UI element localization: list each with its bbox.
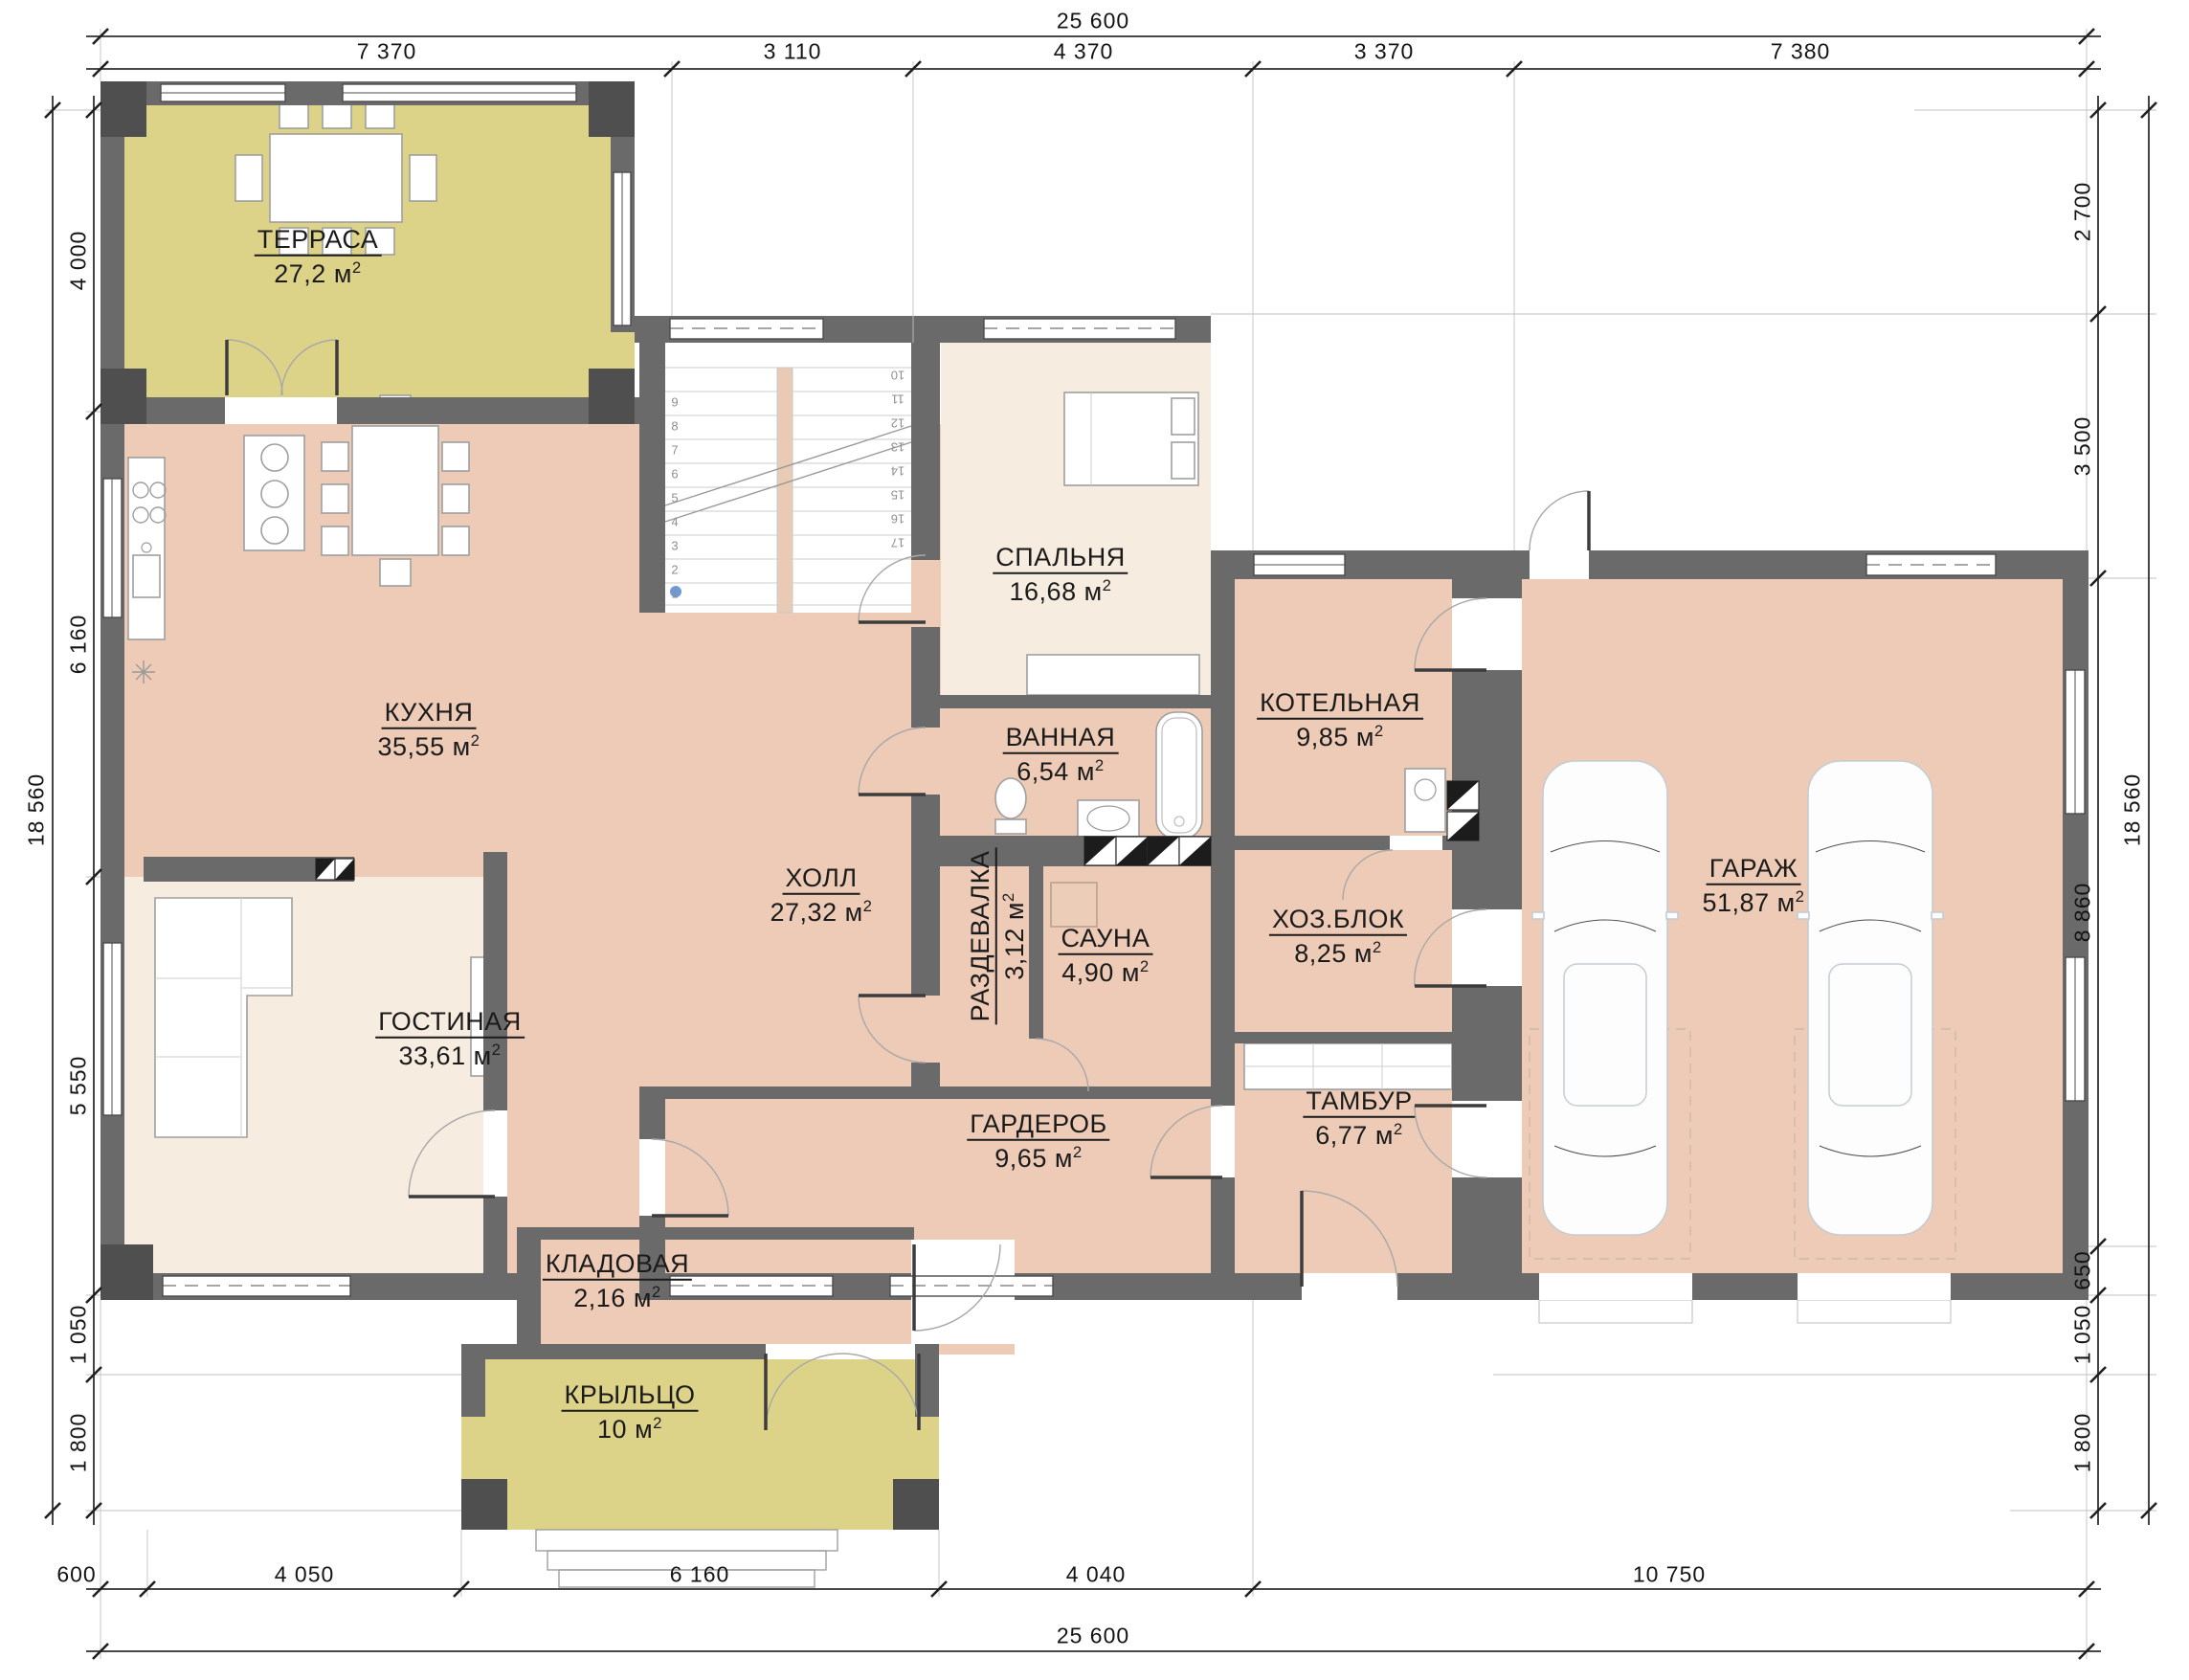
dim-left_segments-0: 4 000 bbox=[66, 231, 92, 291]
stair-step-number: 16 bbox=[891, 512, 905, 526]
stair-step-number: 6 bbox=[671, 467, 678, 482]
room-area: 9,85 м2 bbox=[1296, 723, 1383, 751]
stair-step-number: 9 bbox=[671, 395, 678, 410]
room-label-kladovaya: КЛАДОВАЯ2,16 м2 bbox=[543, 1249, 692, 1312]
room-area: 2,16 м2 bbox=[573, 1284, 660, 1312]
room-label-gostinaya: ГОСТИНАЯ33,61 м2 bbox=[375, 1007, 525, 1070]
stair-step-number: 11 bbox=[891, 392, 905, 407]
stair-step-number: 8 bbox=[671, 419, 678, 434]
room-name: ГАРАЖ bbox=[1707, 854, 1800, 885]
room-area: 51,87 м2 bbox=[1703, 888, 1805, 917]
stair-step-number: 5 bbox=[671, 491, 678, 505]
dim-left_segments-1: 6 160 bbox=[66, 615, 92, 675]
room-label-kotelnaya: КОТЕЛЬНАЯ9,85 м2 bbox=[1257, 688, 1423, 751]
stair-step-number: 14 bbox=[891, 464, 905, 479]
room-name: РАЗДЕВАЛКА bbox=[966, 848, 997, 1025]
room-name: КРЫЛЬЦО bbox=[562, 1380, 699, 1412]
dim-top_total: 25 600 bbox=[1057, 9, 1129, 34]
dim-left_segments-4: 1 800 bbox=[66, 1413, 92, 1473]
dim-right_total: 18 560 bbox=[2120, 773, 2146, 846]
room-area: 8,25 м2 bbox=[1294, 939, 1381, 968]
room-label-garderob: ГАРДЕРОБ9,65 м2 bbox=[967, 1109, 1109, 1173]
room-name: КОТЕЛЬНАЯ bbox=[1257, 688, 1423, 720]
stair-step-number: 1 bbox=[671, 587, 678, 601]
dim-left_total: 18 560 bbox=[24, 773, 50, 846]
room-area: 35,55 м2 bbox=[378, 732, 480, 761]
dim-top_segments-3: 3 370 bbox=[1354, 39, 1415, 65]
room-name: КЛАДОВАЯ bbox=[543, 1249, 692, 1281]
room-label-garazh: ГАРАЖ51,87 м2 bbox=[1703, 854, 1805, 917]
dim-right_segments-3: 650 bbox=[2070, 1250, 2096, 1289]
room-name: ГОСТИНАЯ bbox=[375, 1007, 525, 1039]
room-area: 10 м2 bbox=[597, 1415, 662, 1444]
dim-bottom_segments-1: 4 050 bbox=[275, 1562, 335, 1588]
dim-right_segments-2: 8 860 bbox=[2070, 883, 2096, 943]
room-name: ТЕРРАСА bbox=[255, 225, 382, 257]
room-area: 9,65 м2 bbox=[994, 1144, 1082, 1173]
room-label-kuhnya: КУХНЯ35,55 м2 bbox=[378, 698, 480, 761]
stair-step-number: 10 bbox=[891, 369, 905, 383]
dim-bottom_segments-3: 4 040 bbox=[1066, 1562, 1127, 1588]
dim-right_segments-0: 2 700 bbox=[2070, 182, 2096, 242]
room-label-razdevalka: РАЗДЕВАЛКА3,12 м2 bbox=[966, 848, 1029, 1025]
room-name: КУХНЯ bbox=[382, 698, 477, 729]
room-name: ВАННАЯ bbox=[1003, 723, 1119, 754]
dim-top_segments-0: 7 370 bbox=[357, 39, 417, 65]
room-name: САУНА bbox=[1059, 924, 1153, 955]
room-name: СПАЛЬНЯ bbox=[993, 543, 1128, 574]
room-area: 6,77 м2 bbox=[1315, 1121, 1402, 1150]
dim-left_segments-3: 1 050 bbox=[66, 1305, 92, 1365]
room-name: ХОЗ.БЛОК bbox=[1269, 905, 1407, 936]
room-name: ГАРДЕРОБ bbox=[967, 1109, 1109, 1141]
staircase bbox=[665, 343, 911, 613]
dim-bottom_total: 25 600 bbox=[1057, 1624, 1129, 1649]
floor-plan-page: ТЕРРАСА27,2 м2КУХНЯ35,55 м2ГОСТИНАЯ33,61… bbox=[0, 0, 2189, 1680]
room-area: 4,90 м2 bbox=[1061, 958, 1149, 987]
room-area: 6,54 м2 bbox=[1016, 757, 1104, 786]
room-label-sauna: САУНА4,90 м2 bbox=[1059, 924, 1153, 987]
stair-step-number: 17 bbox=[891, 536, 905, 550]
room-area: 27,32 м2 bbox=[771, 898, 873, 927]
room-name: ХОЛЛ bbox=[782, 863, 860, 895]
stair-step-number: 2 bbox=[671, 563, 678, 577]
stair-step-number: 13 bbox=[891, 440, 905, 455]
room-label-terrasa: ТЕРРАСА27,2 м2 bbox=[255, 225, 382, 288]
room-name: ТАМБУР bbox=[1303, 1086, 1415, 1118]
room-area: 3,12 м2 bbox=[1000, 892, 1029, 979]
room-label-tambur: ТАМБУР6,77 м2 bbox=[1303, 1086, 1415, 1150]
dim-bottom_segments-0: 600 bbox=[56, 1562, 96, 1588]
dim-top_segments-4: 7 380 bbox=[1771, 39, 1831, 65]
dim-top_segments-1: 3 110 bbox=[764, 39, 822, 65]
dim-right_segments-4: 1 050 bbox=[2070, 1305, 2096, 1365]
stair-step-number: 4 bbox=[671, 515, 678, 529]
room-area: 16,68 м2 bbox=[1010, 577, 1112, 606]
stair-step-number: 7 bbox=[671, 443, 678, 458]
dim-right_segments-1: 3 500 bbox=[2070, 416, 2096, 477]
dim-bottom_segments-4: 10 750 bbox=[1633, 1562, 1706, 1588]
stair-step-number: 15 bbox=[891, 488, 905, 503]
room-label-holl: ХОЛЛ27,32 м2 bbox=[771, 863, 873, 927]
room-area: 33,61 м2 bbox=[399, 1042, 502, 1070]
dim-bottom_segments-2: 6 160 bbox=[670, 1562, 730, 1588]
room-area: 27,2 м2 bbox=[274, 259, 361, 288]
dim-right_segments-5: 1 800 bbox=[2070, 1413, 2096, 1473]
dim-left_segments-2: 5 550 bbox=[66, 1056, 92, 1116]
stair-step-number: 3 bbox=[671, 539, 678, 553]
room-label-spalnya: СПАЛЬНЯ16,68 м2 bbox=[993, 543, 1128, 606]
room-label-kryltso: КРЫЛЬЦО10 м2 bbox=[562, 1380, 699, 1444]
room-label-hozblok: ХОЗ.БЛОК8,25 м2 bbox=[1269, 905, 1407, 968]
stair-step-number: 12 bbox=[891, 416, 905, 431]
dim-top_segments-2: 4 370 bbox=[1054, 39, 1114, 65]
room-label-vannaya: ВАННАЯ6,54 м2 bbox=[1003, 723, 1119, 786]
